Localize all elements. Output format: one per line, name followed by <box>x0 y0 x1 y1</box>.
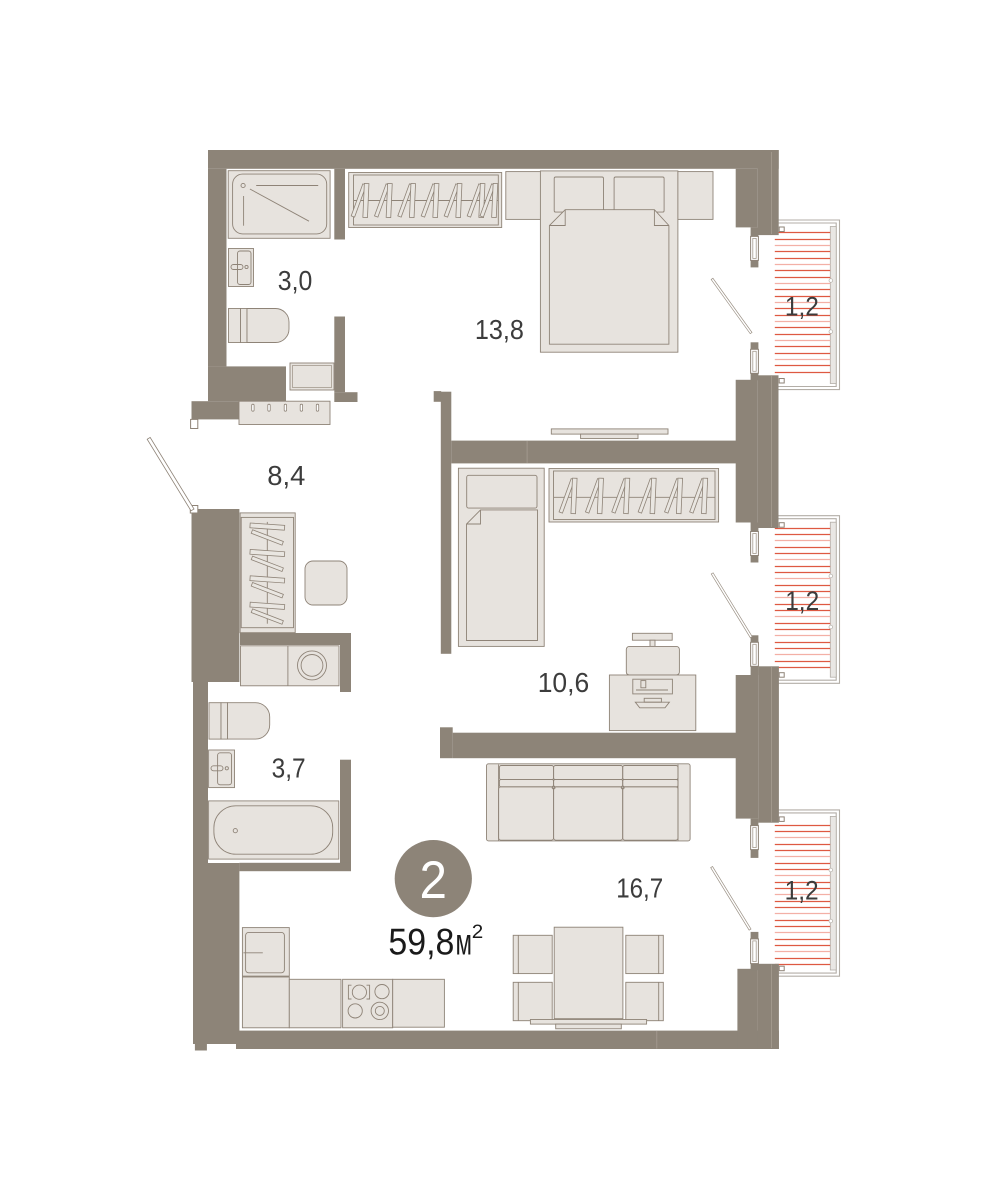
svg-text:1,2: 1,2 <box>785 586 819 616</box>
svg-text:13,8: 13,8 <box>475 314 524 345</box>
svg-text:м: м <box>456 921 473 962</box>
svg-text:3,0: 3,0 <box>278 265 313 296</box>
svg-text:8,4: 8,4 <box>267 460 305 491</box>
svg-text:2: 2 <box>420 851 448 910</box>
svg-text:1,2: 1,2 <box>785 292 819 322</box>
svg-text:59,8: 59,8 <box>388 921 454 962</box>
svg-text:16,7: 16,7 <box>616 873 663 904</box>
svg-text:3,7: 3,7 <box>272 753 306 784</box>
svg-text:10,6: 10,6 <box>538 667 590 698</box>
svg-text:2: 2 <box>472 922 484 943</box>
svg-text:1,2: 1,2 <box>785 875 819 905</box>
